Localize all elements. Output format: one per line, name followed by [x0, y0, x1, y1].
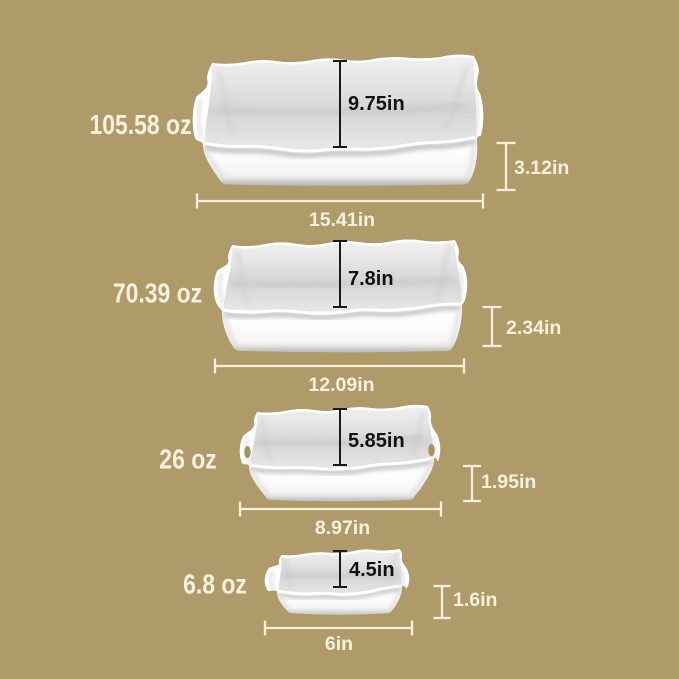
svg-text:3.12in: 3.12in — [514, 157, 569, 179]
svg-text:8.97in: 8.97in — [315, 517, 370, 539]
svg-text:26 oz: 26 oz — [159, 444, 216, 475]
svg-text:15.41in: 15.41in — [309, 209, 375, 231]
svg-text:9.75in: 9.75in — [348, 93, 405, 115]
svg-text:7.8in: 7.8in — [348, 268, 394, 290]
svg-text:6.8 oz: 6.8 oz — [183, 569, 247, 600]
svg-text:1.95in: 1.95in — [481, 471, 536, 493]
svg-text:1.6in: 1.6in — [453, 589, 497, 611]
svg-text:12.09in: 12.09in — [308, 374, 374, 396]
svg-text:4.5in: 4.5in — [349, 559, 395, 581]
svg-text:6in: 6in — [325, 633, 353, 655]
svg-text:2.34in: 2.34in — [506, 317, 561, 339]
svg-text:5.85in: 5.85in — [348, 430, 405, 452]
svg-text:105.58 oz: 105.58 oz — [89, 110, 191, 141]
svg-text:70.39 oz: 70.39 oz — [113, 278, 202, 309]
